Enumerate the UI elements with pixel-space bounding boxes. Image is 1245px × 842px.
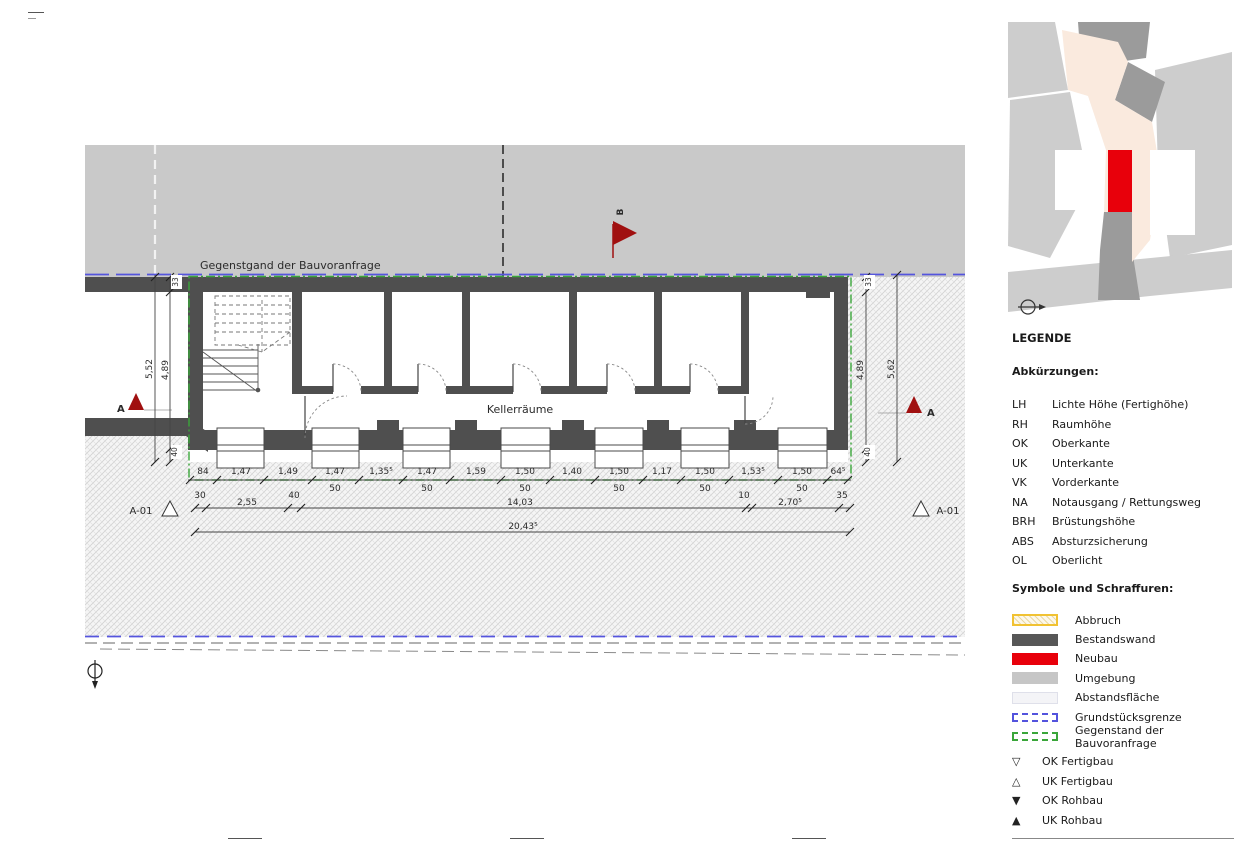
hatch-row-abstandsflaeche: Abstandsfläche (1012, 688, 1234, 707)
legend-title: LEGENDE (1012, 331, 1234, 345)
svg-text:1,59: 1,59 (466, 467, 486, 477)
triangle-down-outline-icon: ▽ (1012, 755, 1042, 768)
svg-text:50: 50 (421, 484, 433, 494)
umgebung-swatch (1012, 672, 1058, 684)
svg-text:5,52: 5,52 (145, 359, 155, 379)
abbruch-swatch (1012, 614, 1058, 626)
svg-text:1,50: 1,50 (792, 467, 812, 477)
umgebung-band (85, 145, 965, 277)
svg-text:1,17: 1,17 (652, 467, 672, 477)
bestandswand-swatch (1012, 634, 1058, 646)
marker-row-ok-rohbau: ▼OK Rohbau (1012, 791, 1234, 810)
abbreviation-row: NANotausgang / Rettungsweg (1012, 493, 1234, 513)
neubau-swatch (1012, 653, 1058, 665)
svg-text:30: 30 (194, 491, 206, 501)
abbreviation-row: OLOberlicht (1012, 551, 1234, 571)
abstandsflaeche-swatch (1012, 692, 1058, 704)
svg-text:40: 40 (288, 491, 300, 501)
abbreviation-row: LHLichte Höhe (Fertighöhe) (1012, 395, 1234, 415)
site-plan-map (1008, 22, 1232, 322)
hatch-row-gegenstand: Gegenstand der Bauvoranfrage (1012, 727, 1234, 746)
abbreviation-row: OKOberkante (1012, 434, 1234, 454)
svg-text:A: A (927, 408, 935, 419)
hatch-row-neubau: Neubau (1012, 649, 1234, 668)
site-neubau (1108, 150, 1132, 212)
room-label: Kellerräume (487, 403, 554, 416)
north-arrow (88, 660, 102, 689)
svg-text:1,50: 1,50 (609, 467, 629, 477)
svg-text:4,89: 4,89 (161, 360, 171, 380)
svg-text:B: B (616, 208, 626, 215)
svg-text:33: 33 (864, 277, 873, 287)
svg-text:1,47: 1,47 (231, 467, 251, 477)
svg-text:50: 50 (796, 484, 808, 494)
hatch-row-abbruch: Abbruch (1012, 611, 1234, 630)
floor-plan-drawing: Gegenstgand der Bauvoranfrage Kellerräum… (0, 0, 1000, 842)
grundstuecksgrenze-swatch (1012, 713, 1058, 722)
triangle-up-outline-icon: △ (1012, 775, 1042, 788)
marker-list: ▽OK Fertigbau △UK Fertigbau ▼OK Rohbau ▲… (1012, 752, 1234, 830)
svg-text:33: 33 (171, 277, 180, 287)
svg-text:64⁵: 64⁵ (830, 467, 845, 477)
abbreviation-list: LHLichte Höhe (Fertighöhe) RHRaumhöhe OK… (1012, 395, 1234, 571)
svg-text:1,53⁵: 1,53⁵ (741, 467, 765, 477)
abbreviation-row: RHRaumhöhe (1012, 415, 1234, 435)
svg-text:40: 40 (170, 447, 179, 457)
legend-symbols-heading: Symbole und Schraffuren: (1012, 582, 1234, 595)
legend-panel: LEGENDE Abkürzungen: LHLichte Höhe (Fert… (1012, 331, 1234, 830)
svg-text:1,47: 1,47 (325, 467, 345, 477)
svg-text:1,50: 1,50 (515, 467, 535, 477)
svg-text:1,50: 1,50 (695, 467, 715, 477)
svg-text:50: 50 (519, 484, 531, 494)
svg-text:2,55: 2,55 (237, 498, 257, 508)
svg-text:A-01: A-01 (130, 506, 153, 517)
svg-text:14,03: 14,03 (507, 498, 533, 508)
marker-row-uk-rohbau: ▲UK Rohbau (1012, 810, 1234, 829)
svg-text:4,89: 4,89 (856, 360, 866, 380)
svg-text:1,49: 1,49 (278, 467, 298, 477)
abbreviation-row: ABSAbsturzsicherung (1012, 532, 1234, 552)
svg-text:10: 10 (738, 491, 750, 501)
abbreviation-row: UKUnterkante (1012, 454, 1234, 474)
svg-text:20,43⁵: 20,43⁵ (508, 522, 538, 532)
abbreviation-row: BRHBrüstungshöhe (1012, 512, 1234, 532)
svg-text:1,40: 1,40 (562, 467, 582, 477)
svg-text:35: 35 (836, 491, 847, 501)
hatch-row-bestandswand: Bestandswand (1012, 630, 1234, 649)
svg-text:50: 50 (613, 484, 625, 494)
boundary-aux-line (100, 649, 965, 655)
legend-abbr-heading: Abkürzungen: (1012, 365, 1234, 378)
svg-text:84: 84 (197, 467, 209, 477)
marker-row-ok-fertigbau: ▽OK Fertigbau (1012, 752, 1234, 771)
svg-text:2,70⁵: 2,70⁵ (778, 498, 802, 508)
svg-text:50: 50 (699, 484, 711, 494)
svg-text:1,35⁵: 1,35⁵ (369, 467, 393, 477)
triangle-up-filled-icon: ▲ (1012, 814, 1042, 827)
hatch-list: Abbruch Bestandswand Neubau Umgebung Abs… (1012, 611, 1234, 747)
abbreviation-row: VKVorderkante (1012, 473, 1234, 493)
hatch-row-umgebung: Umgebung (1012, 669, 1234, 688)
drawing-sheet: Gegenstgand der Bauvoranfrage Kellerräum… (0, 0, 1245, 842)
legend-bottom-rule (1012, 838, 1234, 839)
boundary-caption: Gegenstgand der Bauvoranfrage (200, 259, 381, 272)
svg-text:A-01: A-01 (937, 506, 960, 517)
svg-text:40: 40 (863, 447, 872, 457)
marker-row-uk-fertigbau: △UK Fertigbau (1012, 772, 1234, 791)
triangle-down-filled-icon: ▼ (1012, 794, 1042, 807)
svg-text:50: 50 (329, 484, 341, 494)
svg-text:1,47: 1,47 (417, 467, 437, 477)
svg-text:5,62: 5,62 (887, 359, 897, 379)
svg-text:A: A (117, 404, 125, 415)
gegenstand-swatch (1012, 732, 1058, 741)
